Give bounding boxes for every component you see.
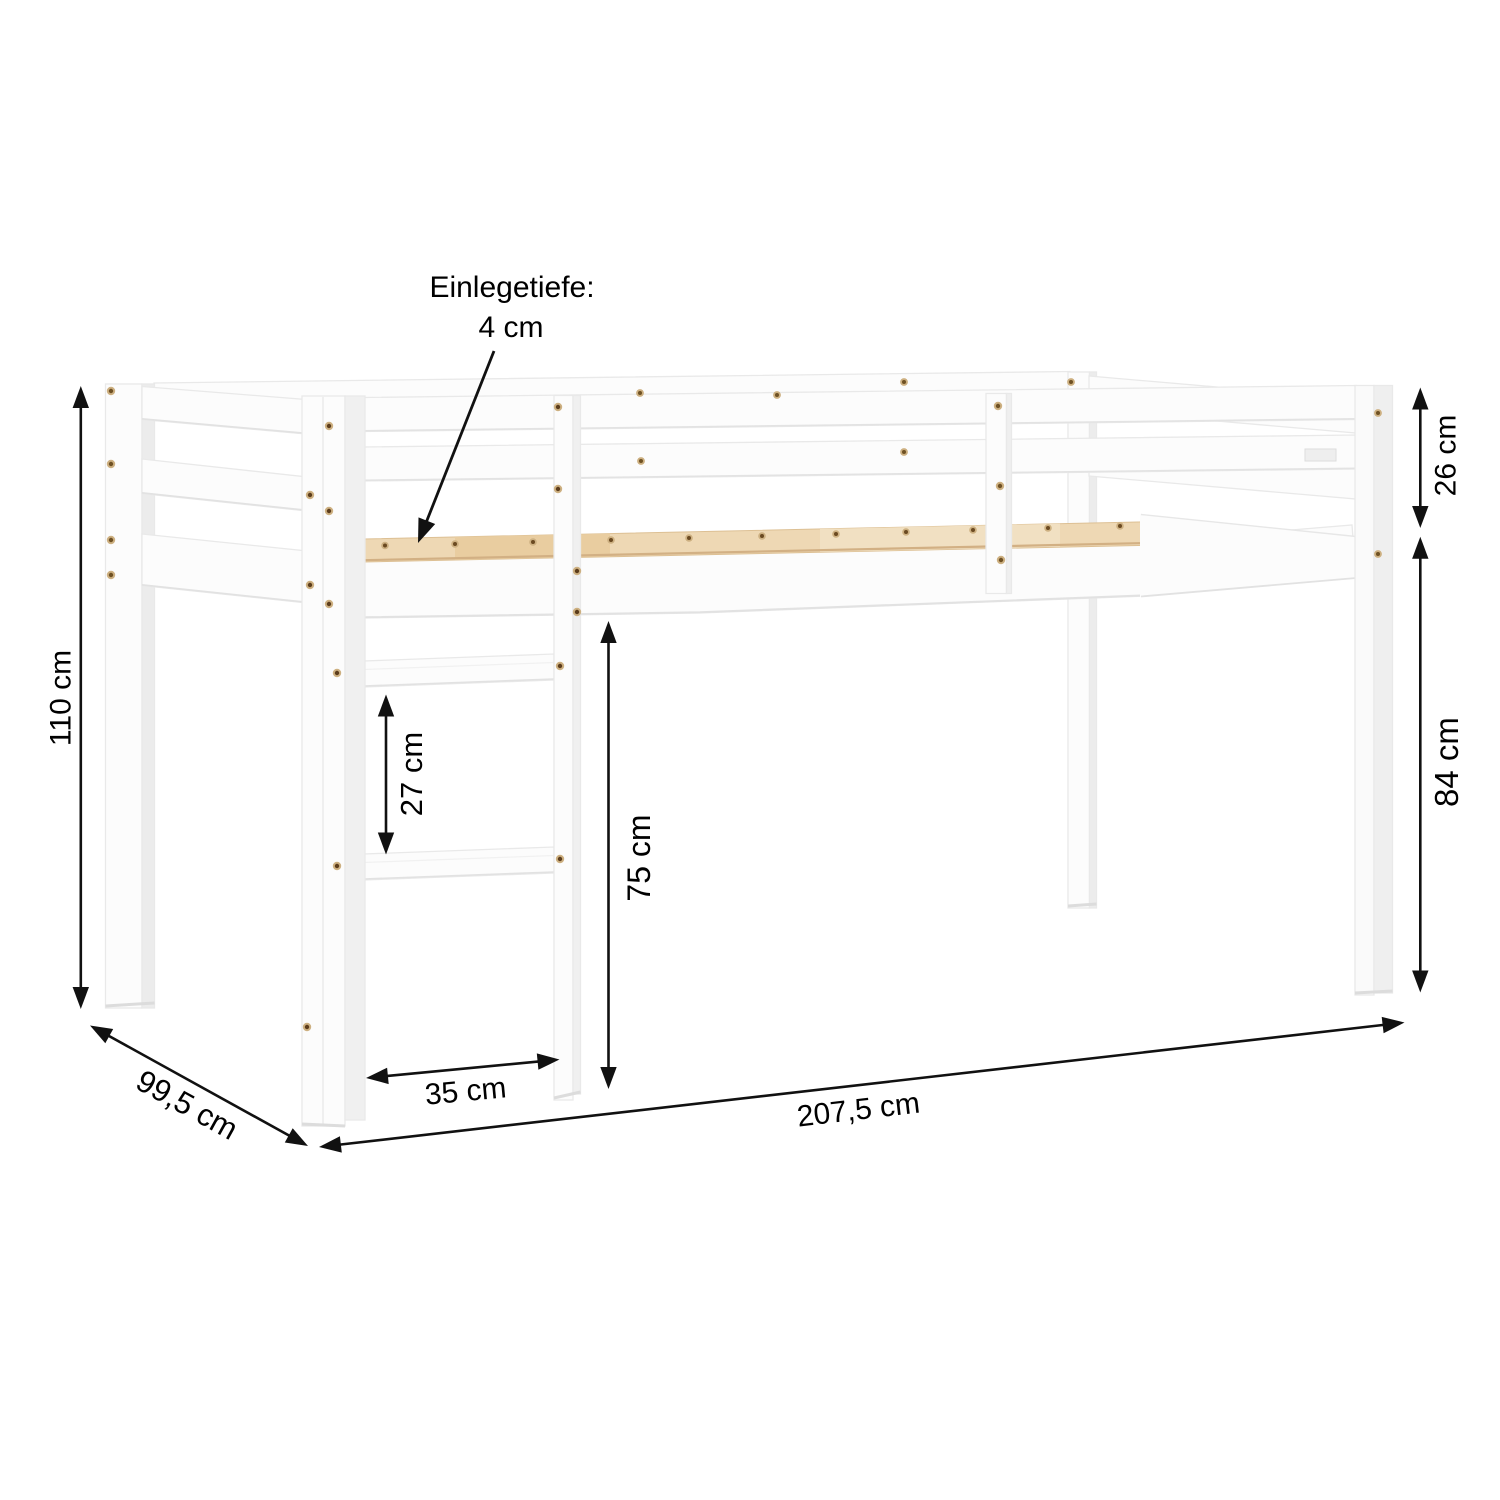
svg-text:27 cm: 27 cm (394, 732, 429, 816)
svg-text:Einlegetiefe:: Einlegetiefe: (429, 271, 594, 304)
svg-text:75 cm: 75 cm (621, 814, 657, 901)
svg-text:4 cm: 4 cm (478, 311, 543, 344)
svg-text:110 cm: 110 cm (45, 650, 78, 746)
svg-text:84 cm: 84 cm (1428, 717, 1465, 807)
svg-text:26 cm: 26 cm (1430, 415, 1463, 497)
